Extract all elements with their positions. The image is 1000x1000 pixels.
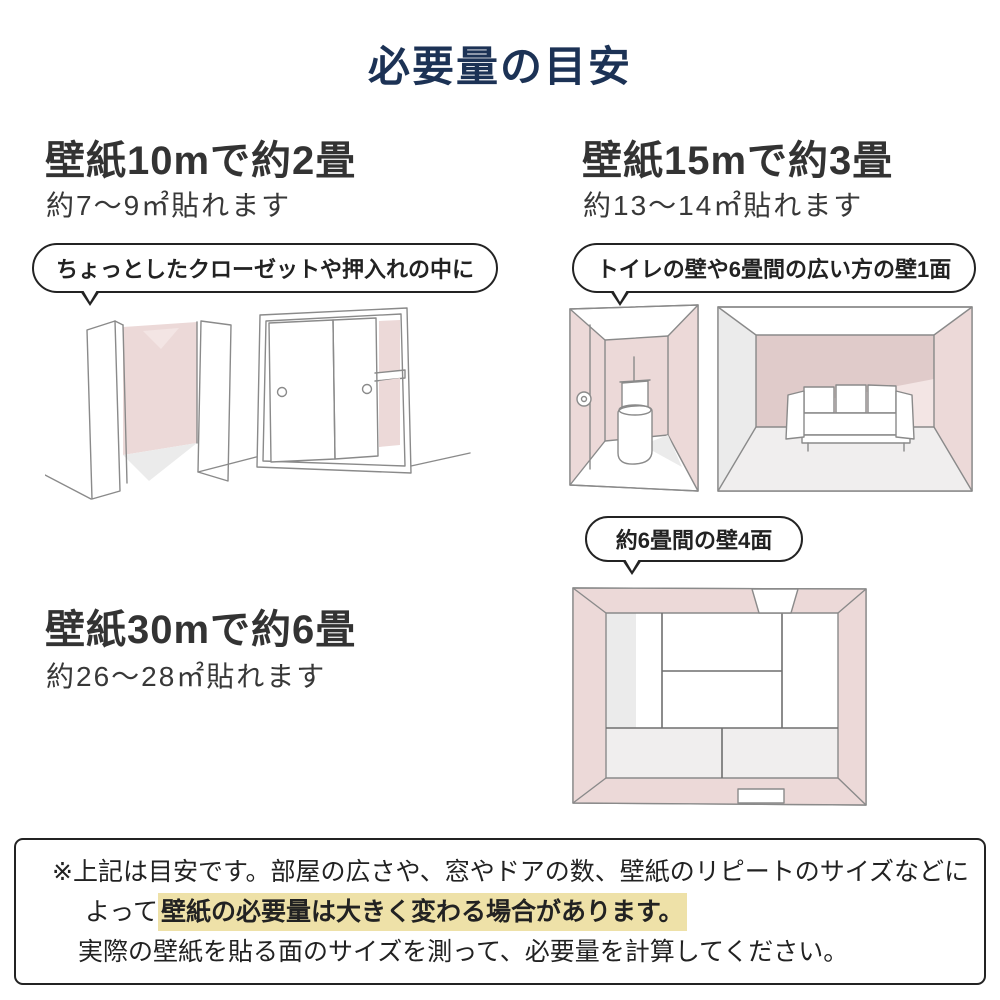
tatami-room-floor-plan-illustration — [570, 583, 870, 808]
note-highlight: 壁紙の必要量は大きく変わる場合があります。 — [158, 893, 687, 931]
note-line-1: ※上記は目安です。部屋の広さや、窓やドアの数、壁紙のリピートのサイズなどに — [52, 852, 984, 892]
open-closet-illustration — [45, 321, 260, 499]
note-line-2-prefix: よって — [85, 898, 158, 926]
note-box: ※上記は目安です。部屋の広さや、窓やドアの数、壁紙のリピートのサイズなどに よっ… — [14, 838, 986, 985]
room-illustrations — [560, 295, 980, 505]
section-30m-heading: 壁紙30mで約6畳 — [45, 597, 356, 655]
section-15m-bubble: トイレの壁や6畳間の広い方の壁1面 — [572, 243, 976, 293]
section-30m-subtext: 約26〜28㎡貼れます — [46, 655, 326, 695]
note-line-2: よって壁紙の必要量は大きく変わる場合があります。 — [85, 892, 984, 932]
section-15m-subtext: 約13〜14㎡貼れます — [583, 184, 863, 224]
note-line-3: 実際の壁紙を貼る面のサイズを測って、必要量を計算してください。 — [78, 932, 984, 972]
closet-illustrations — [45, 295, 515, 510]
section-30m-bubble: 約6畳間の壁4面 — [585, 516, 803, 562]
section-10m-heading: 壁紙10mで約2畳 — [45, 128, 356, 186]
section-10m-subtext: 約7〜9㎡貼れます — [46, 184, 291, 224]
wallpaper-guide-infographic: 必要量の目安 壁紙10mで約2畳 約7〜9㎡貼れます ちょっとしたクローゼットや… — [0, 0, 1000, 1000]
toilet-room-illustration — [570, 305, 698, 491]
section-15m-heading: 壁紙15mで約3畳 — [582, 128, 893, 186]
sofa-room-illustration — [718, 307, 972, 491]
sliding-closet-illustration — [257, 308, 470, 473]
page-title: 必要量の目安 — [0, 33, 1000, 94]
section-10m-bubble: ちょっとしたクローゼットや押入れの中に — [32, 243, 498, 293]
